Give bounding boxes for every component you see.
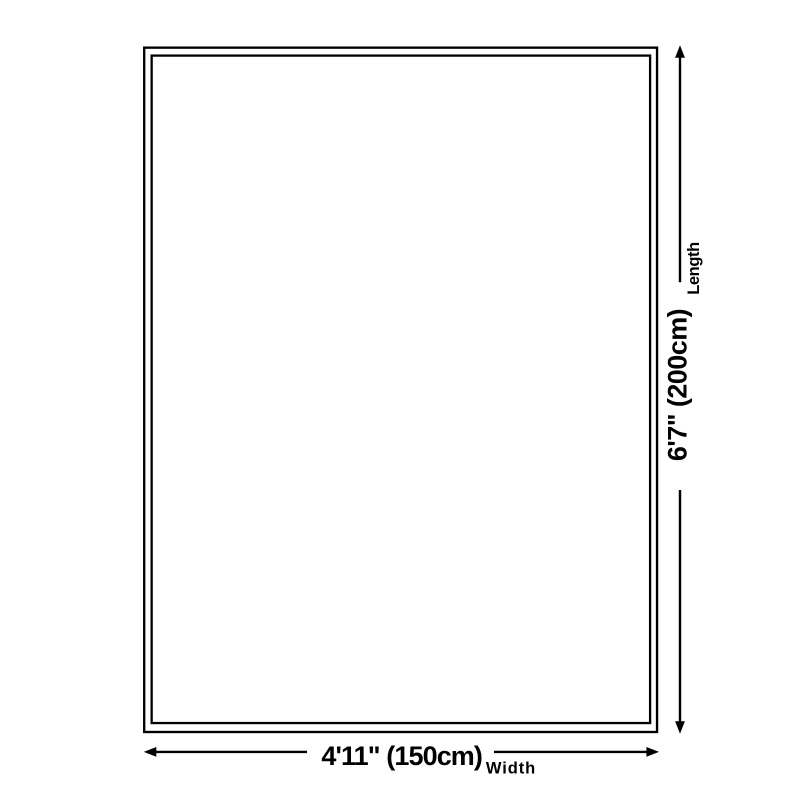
svg-text:4'11" (150cm): 4'11" (150cm) — [321, 741, 482, 771]
svg-text:Width: Width — [486, 760, 536, 778]
svg-text:6'7" (200cm): 6'7" (200cm) — [662, 309, 692, 461]
svg-text:Length: Length — [685, 242, 703, 295]
